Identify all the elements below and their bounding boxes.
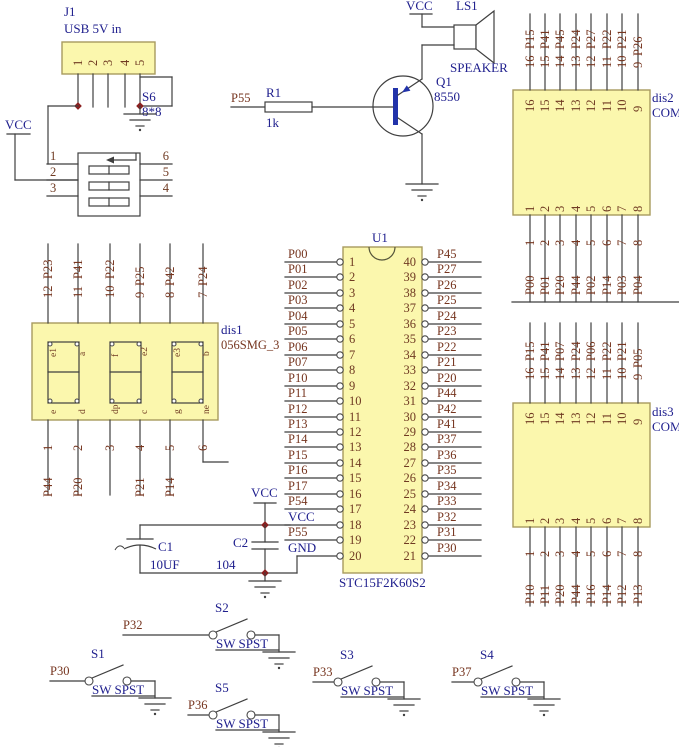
pin-number: 1	[41, 445, 55, 451]
circuit-schematic: J1USB 5V in12345S68*8VCC162534VCCLS1SPEA…	[0, 0, 679, 747]
pin-label: P45	[437, 247, 456, 261]
segment-node	[172, 399, 176, 403]
pin-circle	[337, 429, 343, 435]
net-label: P13	[631, 585, 645, 604]
pin-number: 27	[404, 456, 417, 470]
pin-label: P31	[437, 525, 456, 539]
pin-number: 3	[103, 445, 117, 451]
pin-number: 7	[349, 348, 355, 362]
pin-label: P12	[288, 402, 307, 416]
pin-circle	[422, 522, 428, 528]
net-label: P36	[188, 698, 207, 712]
pin-circle	[337, 522, 343, 528]
pin-number: 14	[553, 99, 567, 112]
pin-label: P34	[437, 479, 457, 493]
net-label: P12	[615, 585, 629, 604]
pin-number: 4	[133, 444, 147, 451]
pin-number: 10	[615, 56, 629, 69]
pin-number: 20	[349, 549, 362, 563]
pin-number: 36	[404, 317, 417, 331]
net-label: P44	[569, 584, 583, 604]
pin-number: 22	[404, 533, 417, 547]
pin-number: 34	[404, 348, 417, 362]
part-name: SW SPST	[341, 683, 393, 698]
segment-node	[110, 399, 114, 403]
pin-circle	[337, 383, 343, 389]
pin-circle	[337, 352, 343, 358]
pin-number: 4	[569, 205, 583, 212]
wire	[398, 79, 422, 95]
ground-dot	[543, 714, 545, 716]
pin-label: VCC	[288, 509, 315, 524]
pin-label: P30	[437, 541, 456, 555]
pin-number: 12	[349, 425, 362, 439]
segment-node	[110, 342, 114, 346]
net-label: P21	[615, 342, 629, 361]
pin-label: P41	[437, 417, 456, 431]
switch-blade	[341, 666, 372, 679]
pin-circle	[422, 383, 428, 389]
pin-number: 8	[631, 206, 645, 212]
transistor-base-bar	[393, 88, 398, 125]
pin-number: 9	[631, 106, 645, 112]
pin-number: 15	[349, 471, 362, 485]
pin-label: P20	[437, 371, 456, 385]
segment-node	[137, 342, 141, 346]
pin-number: 13	[569, 100, 583, 113]
pin-number: 9	[349, 379, 355, 393]
pin-number: 7	[196, 292, 210, 298]
designator: S1	[91, 646, 105, 661]
power-label: VCC	[406, 0, 433, 13]
pin-number: 8	[163, 292, 177, 298]
pin-number: 28	[404, 440, 417, 454]
driver-dis3: dis3COM16P151611P1015P411522P1114P071433…	[513, 323, 679, 606]
speaker-icon	[454, 25, 476, 49]
pin-number: 6	[163, 149, 169, 163]
net-label: P44	[569, 275, 583, 295]
pin-label: P16	[288, 463, 307, 477]
pin-number: 37	[404, 301, 417, 315]
switch-s5: P36S5SW SPST	[188, 680, 295, 747]
pin-number: 1	[523, 518, 537, 524]
net-label: P11	[538, 585, 552, 604]
pin-number: 1	[71, 60, 85, 66]
pin-circle	[337, 367, 343, 373]
pin-label: P15	[288, 448, 307, 462]
pin-label: P23	[437, 324, 456, 338]
net-label: P04	[631, 275, 645, 295]
pin-label: P32	[437, 510, 456, 524]
pin-number: 6	[600, 551, 614, 557]
pin-number: 9	[133, 292, 147, 298]
part-value: 10UF	[150, 557, 180, 572]
ground-dot	[403, 714, 405, 716]
vcc-flag-left: VCC	[5, 117, 78, 180]
pin-label: P35	[437, 463, 456, 477]
ground-dot	[139, 129, 141, 131]
pin-number: 13	[569, 368, 583, 381]
pin-number: 33	[404, 363, 417, 377]
pin-number: 8	[349, 363, 355, 377]
net-label: P37	[452, 665, 471, 679]
pin-number: 7	[615, 551, 629, 557]
part-name: SPEAKER	[450, 60, 508, 75]
pin-number: 40	[404, 255, 417, 269]
pin-label: P25	[437, 293, 456, 307]
j1-connector: J1USB 5V in12345S68*8	[48, 4, 172, 164]
segment-node	[48, 399, 52, 403]
schematic-canvas: J1USB 5V in12345S68*8VCC162534VCCLS1SPEA…	[0, 0, 679, 747]
pin-label: P11	[288, 386, 307, 400]
net-label: P06	[584, 342, 598, 361]
pin-number: 3	[553, 551, 567, 557]
pin-number: 15	[538, 100, 552, 113]
pin-label: P54	[288, 494, 308, 508]
emitter-arrow-icon	[402, 85, 410, 92]
part-name: STC15F2K60S2	[339, 575, 426, 590]
segment-label: e	[49, 410, 59, 414]
pin-number: 6	[600, 206, 614, 212]
net-label: P20	[553, 276, 567, 295]
net-label: P33	[313, 665, 332, 679]
pin-circle	[337, 475, 343, 481]
designator: dis2	[652, 90, 674, 105]
pin-number: 2	[538, 206, 552, 212]
pin-number: 11	[600, 413, 614, 425]
pin-label: P04	[288, 309, 308, 323]
net-label: P21	[133, 478, 147, 497]
net-label: P21	[615, 30, 629, 49]
net-label: P15	[523, 342, 537, 361]
pin-label: P33	[437, 494, 456, 508]
designator: R1	[266, 85, 281, 100]
segment-node	[172, 342, 176, 346]
pin-number: 7	[615, 206, 629, 212]
pin-number: 4	[118, 59, 132, 66]
pin-number: 5	[584, 551, 598, 557]
pin-number: 14	[553, 55, 567, 68]
net-label: P22	[600, 342, 614, 361]
pin-number: 5	[584, 240, 598, 246]
pin-label: P22	[437, 340, 456, 354]
pin-circle	[337, 259, 343, 265]
pin-number: 2	[50, 165, 56, 179]
pin-number: 2	[538, 551, 552, 557]
net-label: P14	[163, 477, 177, 497]
net-label: P20	[553, 585, 567, 604]
dip-switch: 162534	[47, 149, 172, 216]
ground-dot	[278, 667, 280, 669]
pin-circle	[422, 444, 428, 450]
pin-label: P27	[437, 262, 456, 276]
pin-circle	[422, 553, 428, 559]
pin-number: 14	[553, 367, 567, 380]
designator: C2	[233, 535, 248, 550]
net-label: P41	[71, 260, 85, 279]
pin-circle	[337, 321, 343, 327]
pin-number: 4	[569, 550, 583, 557]
pin-number: 5	[349, 317, 355, 331]
net-label: P26	[631, 37, 645, 56]
pin-number: 26	[404, 471, 417, 485]
power-label: VCC	[251, 485, 278, 500]
pin-number: 12	[584, 56, 598, 69]
pin-number: 8	[631, 518, 645, 524]
pin-number: 1	[523, 206, 537, 212]
switch-blade	[216, 619, 247, 632]
pin-number: 10	[615, 368, 629, 381]
speaker-circuit: VCCLS1SPEAKER	[406, 0, 508, 79]
pin-number: 9	[631, 374, 645, 380]
pin-number: 10	[349, 394, 362, 408]
part-value: 1k	[266, 115, 280, 130]
pin-number: 6	[600, 518, 614, 524]
pin-number: 38	[404, 286, 417, 300]
wire	[398, 118, 422, 134]
pin-circle	[337, 444, 343, 450]
pin-label: P06	[288, 340, 307, 354]
pin-number: 13	[349, 440, 362, 454]
pin-number: 11	[349, 410, 361, 424]
switch-blade	[481, 666, 512, 679]
pin-circle	[337, 537, 343, 543]
pin-number: 15	[538, 413, 552, 426]
pin-circle	[422, 274, 428, 280]
pin-label: P14	[288, 432, 308, 446]
pin-number: 2	[349, 270, 355, 284]
pin-circle	[422, 460, 428, 466]
net-label: P27	[584, 30, 598, 49]
designator: S6	[142, 89, 156, 104]
pin-number: 16	[523, 368, 537, 381]
pin-circle	[422, 305, 428, 311]
pin-circle	[337, 553, 343, 559]
part-name: COM	[652, 419, 679, 434]
net-label: P32	[123, 618, 142, 632]
part-name: 056SMG_3	[221, 338, 279, 352]
switch-blade	[216, 699, 247, 712]
pin-number: 9	[631, 62, 645, 68]
segment-node	[48, 342, 52, 346]
part-name: SW SPST	[216, 636, 268, 651]
pin-number: 15	[538, 56, 552, 69]
ground-dot	[154, 713, 156, 715]
pin-number: 30	[404, 410, 417, 424]
net-label: P10	[523, 585, 537, 604]
net-label: P15	[523, 30, 537, 49]
pin-number: 11	[600, 56, 614, 68]
net-label: P01	[538, 276, 552, 295]
net-label: P07	[553, 342, 567, 361]
segment-node	[199, 399, 203, 403]
designator: S2	[215, 600, 229, 615]
speaker-cone-icon	[476, 11, 494, 63]
pin-number: 16	[349, 487, 362, 501]
net-label: P30	[50, 664, 69, 678]
pin-number: 19	[349, 533, 362, 547]
pin-number: 2	[86, 60, 100, 66]
pin-number: 14	[349, 456, 362, 470]
power-caps: VCCC110UFC2104	[115, 485, 297, 598]
pin-number: 3	[553, 518, 567, 524]
resistor-body	[265, 102, 312, 112]
pin-number: 1	[349, 255, 355, 269]
pin-circle	[422, 491, 428, 497]
pin-number: 13	[569, 56, 583, 69]
pin-circle	[422, 398, 428, 404]
ground-dot	[264, 596, 266, 598]
pin-number: 7	[615, 240, 629, 246]
pin-number: 23	[404, 518, 417, 532]
pin-circle	[422, 290, 428, 296]
designator: S5	[215, 680, 229, 695]
segment-label: e2	[140, 347, 150, 356]
pin-circle	[422, 352, 428, 358]
part-name: SW SPST	[481, 683, 533, 698]
pin-circle	[337, 398, 343, 404]
net-label: P03	[615, 276, 629, 295]
segment-label: dp	[111, 404, 121, 414]
pin-circle	[337, 491, 343, 497]
net-label: P24	[196, 266, 210, 286]
pin-number: 5	[133, 60, 147, 66]
pin-number: 25	[404, 487, 417, 501]
pin-circle	[422, 429, 428, 435]
pin-number: 6	[196, 445, 210, 451]
pin-number: 3	[553, 240, 567, 246]
switch-s3: P33S3SW SPST	[313, 647, 420, 716]
part-name: SW SPST	[92, 682, 144, 697]
segment-node	[199, 342, 203, 346]
net-label: P42	[163, 267, 177, 286]
pin-circle	[337, 274, 343, 280]
part-name: USB 5V in	[64, 21, 122, 36]
pin-label: P02	[288, 278, 307, 292]
pin-number: 2	[538, 518, 552, 524]
pin-label: P26	[437, 278, 456, 292]
pin-number: 31	[404, 394, 417, 408]
display-dis1: dis1056SMG_312P231P4411P412P2010P2239P25…	[32, 244, 279, 497]
pin-number: 3	[553, 206, 567, 212]
designator: C1	[158, 539, 173, 554]
net-label: P14	[600, 584, 614, 604]
pin-circle	[422, 506, 428, 512]
pin-label: GND	[288, 540, 316, 555]
pin-number: 29	[404, 425, 417, 439]
pin-number: 1	[523, 240, 537, 246]
pin-number: 16	[523, 413, 537, 426]
net-label: P25	[133, 267, 147, 286]
pin-label: P44	[437, 386, 457, 400]
net-label: P41	[538, 342, 552, 361]
pin-number: 1	[523, 551, 537, 557]
designator: LS1	[456, 0, 478, 13]
pin-number: 3	[50, 181, 56, 195]
pin-number: 8	[631, 551, 645, 557]
part-value: 8*8	[142, 104, 162, 119]
pin-number: 6	[349, 332, 355, 346]
net-label: P20	[71, 478, 85, 497]
net-label: P22	[103, 260, 117, 279]
transistor-body	[373, 76, 433, 136]
net-label: P24	[569, 341, 583, 361]
segment-node	[137, 399, 141, 403]
pin-number: 7	[615, 518, 629, 524]
designator: S3	[340, 647, 354, 662]
net-label: P00	[523, 276, 537, 295]
pin-number: 1	[50, 149, 56, 163]
pin-number: 2	[71, 445, 85, 451]
pin-label: P10	[288, 371, 307, 385]
segment-label: c	[140, 410, 150, 414]
driver-dis2: dis2COM16P151611P0015P411522P0114P451433…	[513, 14, 679, 302]
part-value: 104	[216, 557, 236, 572]
segment-label: e1	[49, 348, 59, 357]
pin-circle	[337, 460, 343, 466]
pin-number: 8	[631, 240, 645, 246]
pin-label: P24	[437, 309, 457, 323]
pin-label: P55	[288, 525, 307, 539]
net-label: P05	[631, 349, 645, 368]
pin-number: 10	[615, 413, 629, 426]
net-label: P02	[584, 276, 598, 295]
pin-label: P17	[288, 479, 307, 493]
segment-label: ne	[202, 405, 212, 414]
pin-number: 10	[103, 286, 117, 299]
pin-number: 39	[404, 270, 417, 284]
segment-node	[75, 342, 79, 346]
segment-label: b	[202, 351, 212, 356]
power-label: VCC	[5, 117, 32, 132]
pin-number: 5	[163, 165, 169, 179]
pin-number: 32	[404, 379, 417, 393]
pin-label: P42	[437, 402, 456, 416]
pin-number: 18	[349, 518, 362, 532]
net-label: P45	[553, 30, 567, 49]
switch-blade	[92, 665, 123, 678]
pin-number: 4	[569, 239, 583, 246]
pin-number: 12	[41, 286, 55, 299]
pin-number: 5	[163, 445, 177, 451]
pin-number: 24	[404, 502, 417, 516]
pin-label: P07	[288, 355, 307, 369]
pin-label: P37	[437, 432, 456, 446]
pin-number: 21	[404, 549, 417, 563]
pin-label: P13	[288, 417, 307, 431]
j1-body	[62, 42, 155, 74]
pin-circle	[422, 537, 428, 543]
designator: U1	[372, 230, 388, 245]
segment-label: g	[173, 409, 183, 414]
segment-label: d	[78, 409, 88, 414]
pin-label: P03	[288, 293, 307, 307]
part-name: COM	[652, 105, 679, 120]
pin-number: 11	[600, 368, 614, 380]
resistor-r1: P55R11k	[231, 85, 393, 130]
pin-number: 12	[584, 413, 598, 426]
pin-label: P05	[288, 324, 307, 338]
mcu-u1: U1P001P4540P012P2739P023P2638P034P2537P0…	[285, 230, 481, 590]
designator: dis1	[221, 322, 243, 337]
switch-s1: P30S1SW SPST	[50, 646, 171, 715]
pin-circle	[337, 336, 343, 342]
segment-label: e3	[173, 348, 183, 357]
part-name: SW SPST	[216, 716, 268, 731]
pin-number: 9	[631, 419, 645, 425]
pin-circle	[337, 506, 343, 512]
pin-number: 4	[569, 517, 583, 524]
